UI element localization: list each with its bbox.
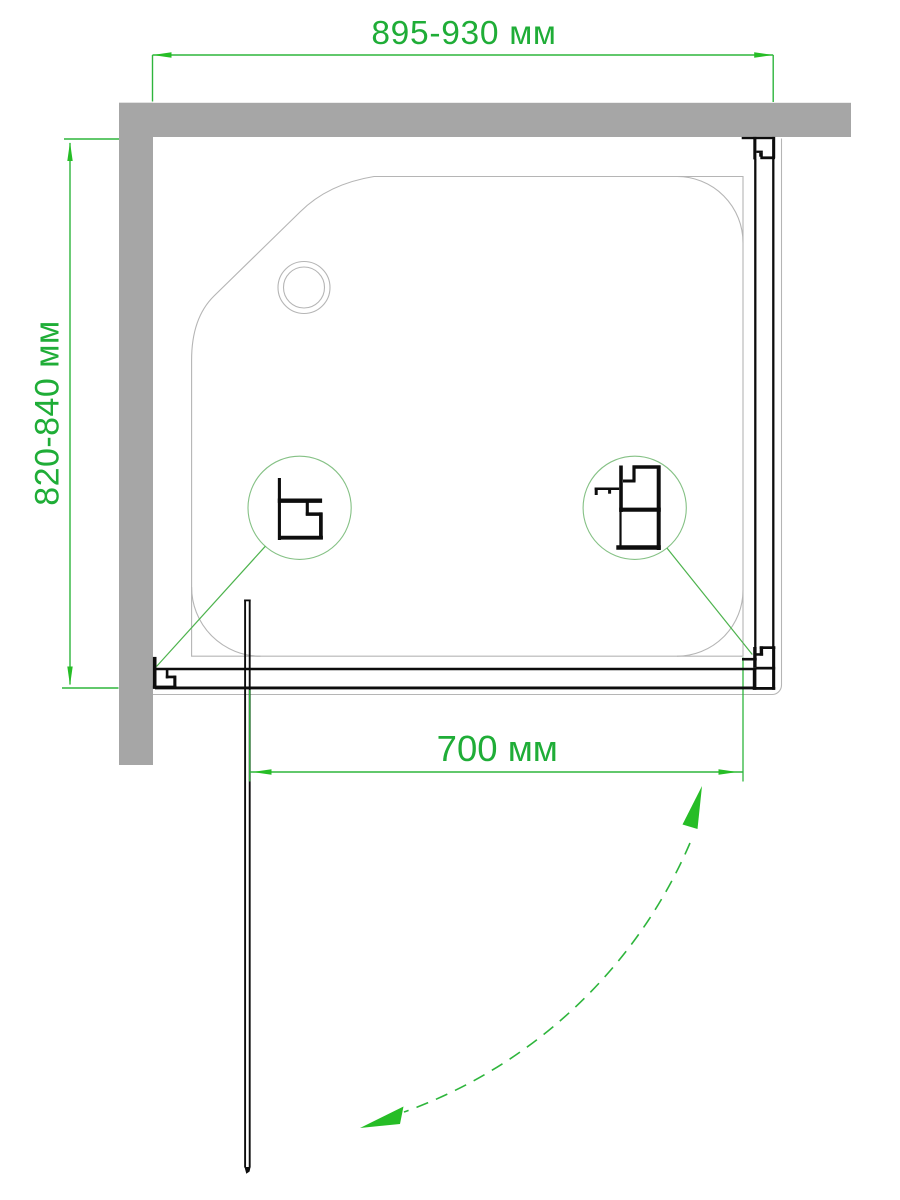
svg-text:895-930 мм: 895-930 мм <box>371 15 556 52</box>
svg-text:820-840 мм: 820-840 мм <box>29 320 67 505</box>
svg-text:700 мм: 700 мм <box>437 728 558 769</box>
